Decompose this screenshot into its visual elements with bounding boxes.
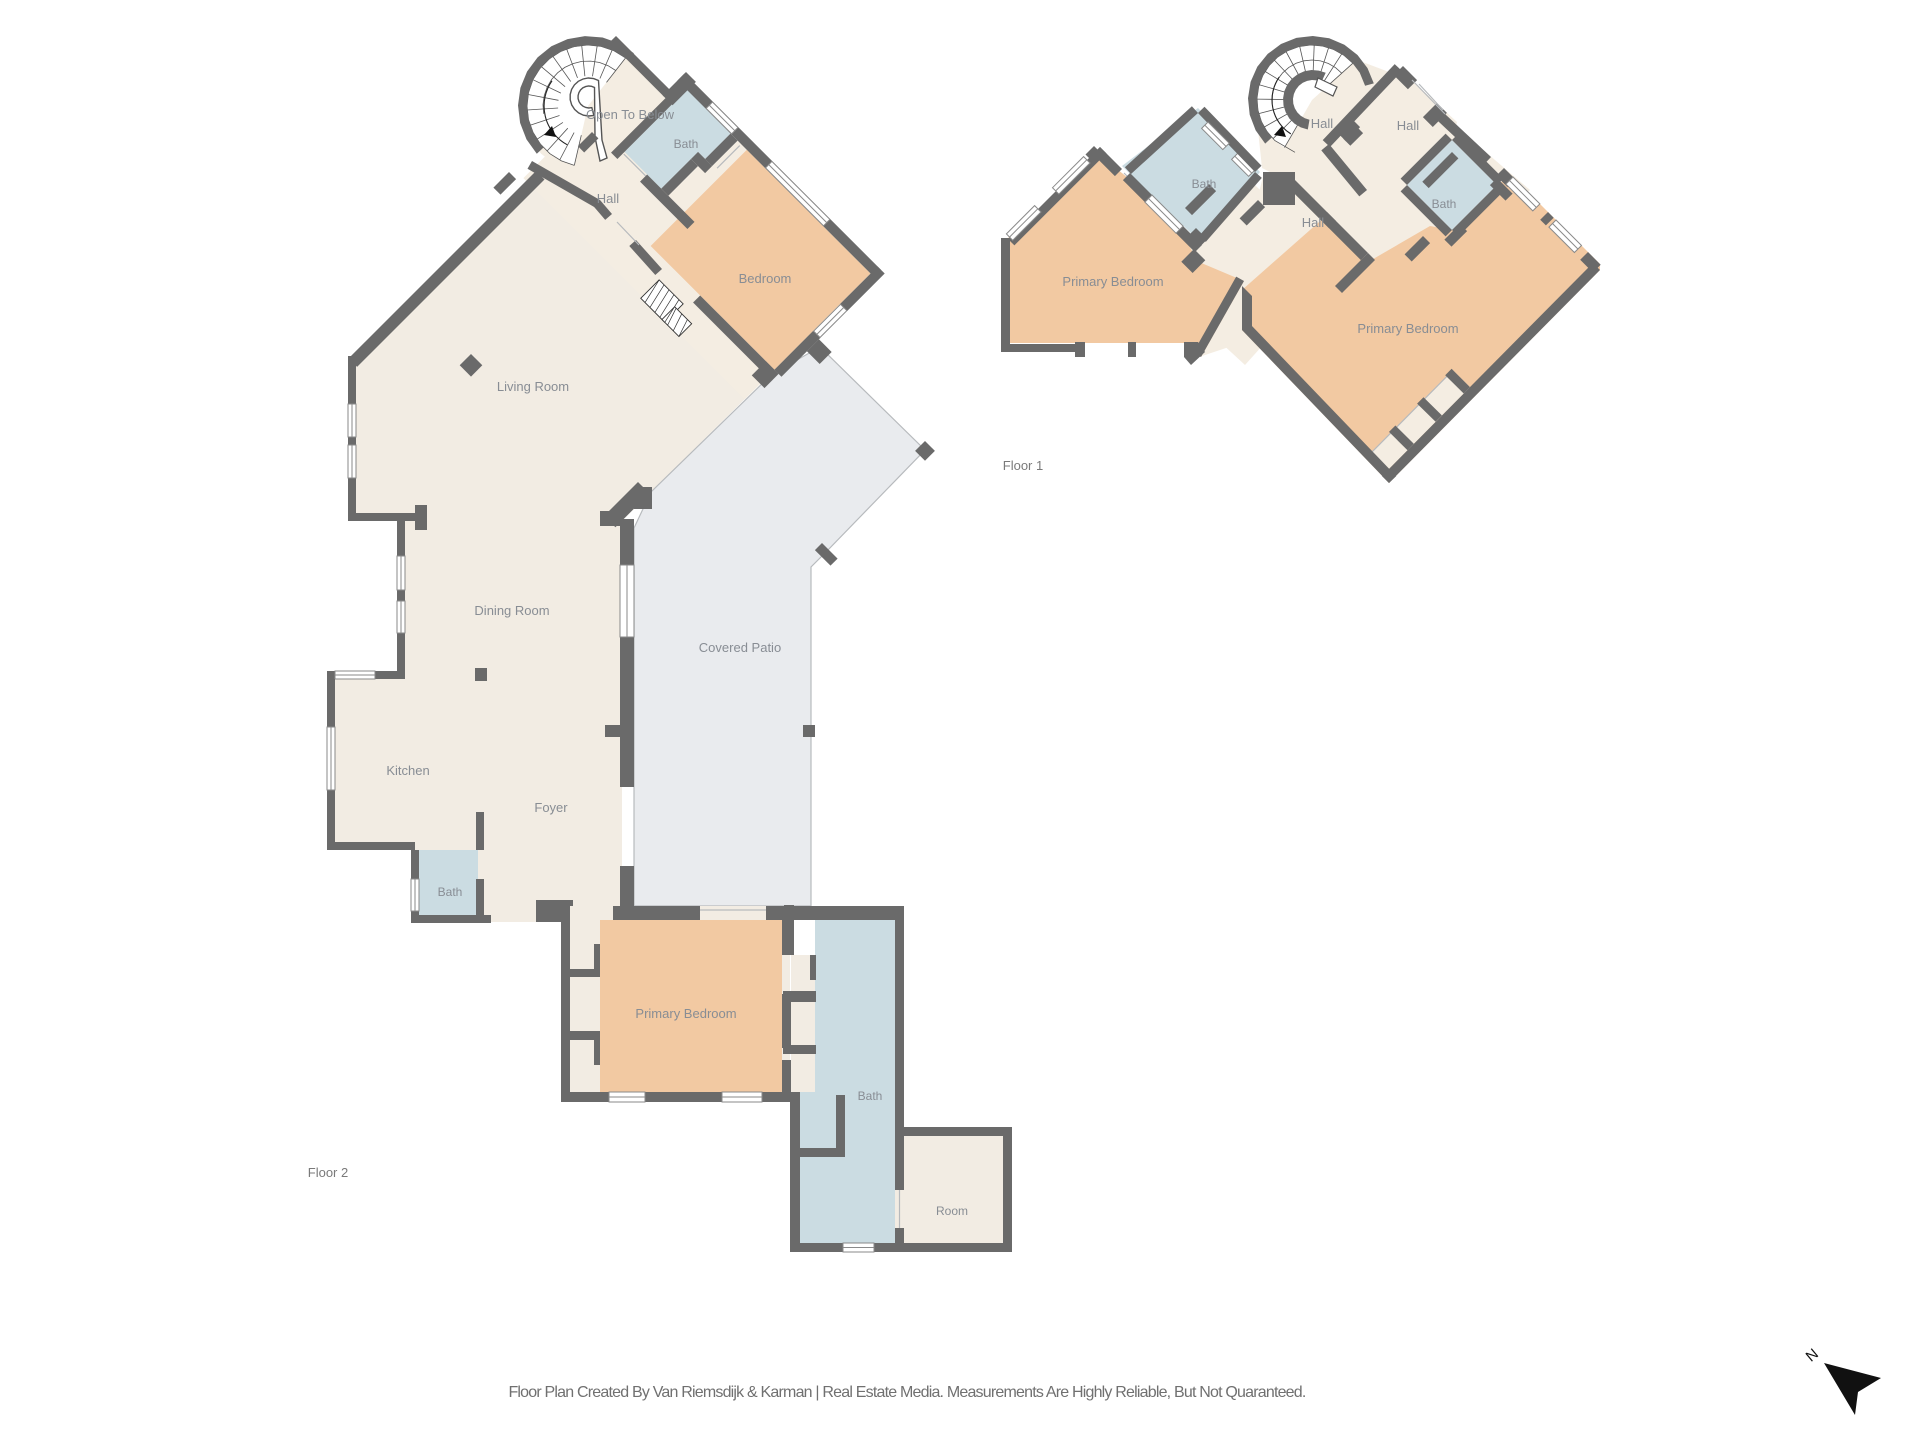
svg-text:Floor Plan Created By Van Riem: Floor Plan Created By Van Riemsdijk & Ka…: [508, 1384, 1305, 1401]
svg-text:Kitchen: Kitchen: [386, 763, 429, 778]
svg-text:Bath: Bath: [1192, 177, 1217, 191]
svg-text:Hall: Hall: [1397, 118, 1420, 133]
svg-text:Open To Below: Open To Below: [586, 107, 675, 122]
svg-text:Hall: Hall: [597, 191, 620, 206]
svg-text:Foyer: Foyer: [534, 800, 568, 815]
svg-text:Covered Patio: Covered Patio: [699, 640, 781, 655]
svg-text:Floor 1: Floor 1: [1003, 458, 1043, 473]
svg-text:Bath: Bath: [1432, 197, 1457, 211]
svg-text:Primary Bedroom: Primary Bedroom: [1062, 274, 1163, 289]
svg-text:N: N: [1803, 1345, 1822, 1365]
svg-text:Hall: Hall: [1311, 116, 1334, 131]
svg-text:Room: Room: [936, 1204, 968, 1218]
svg-text:Bedroom: Bedroom: [739, 271, 792, 286]
svg-text:Bath: Bath: [858, 1089, 883, 1103]
svg-text:Dining Room: Dining Room: [474, 603, 549, 618]
svg-text:Primary Bedroom: Primary Bedroom: [635, 1006, 736, 1021]
svg-text:Hall: Hall: [1302, 215, 1325, 230]
svg-text:Bath: Bath: [438, 885, 463, 899]
svg-text:Living Room: Living Room: [497, 379, 569, 394]
svg-text:Bath: Bath: [674, 137, 699, 151]
svg-text:Primary Bedroom: Primary Bedroom: [1357, 321, 1458, 336]
svg-text:Floor 2: Floor 2: [308, 1165, 348, 1180]
